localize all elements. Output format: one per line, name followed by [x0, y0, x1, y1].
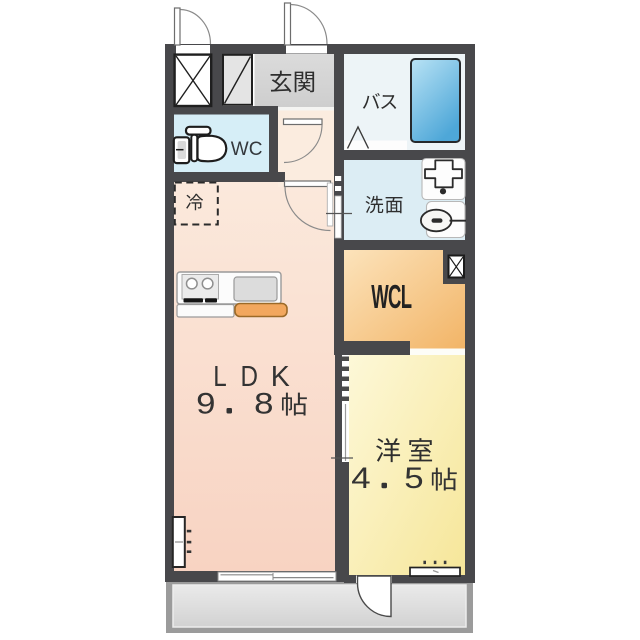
svg-text:4: 4 — [351, 461, 370, 494]
svg-text:WC: WC — [231, 139, 263, 160]
svg-text:WCL: WCL — [371, 278, 412, 315]
svg-text:8: 8 — [254, 387, 273, 420]
svg-text:5: 5 — [404, 461, 423, 494]
svg-text:9: 9 — [196, 387, 215, 420]
svg-text:K: K — [271, 361, 290, 393]
